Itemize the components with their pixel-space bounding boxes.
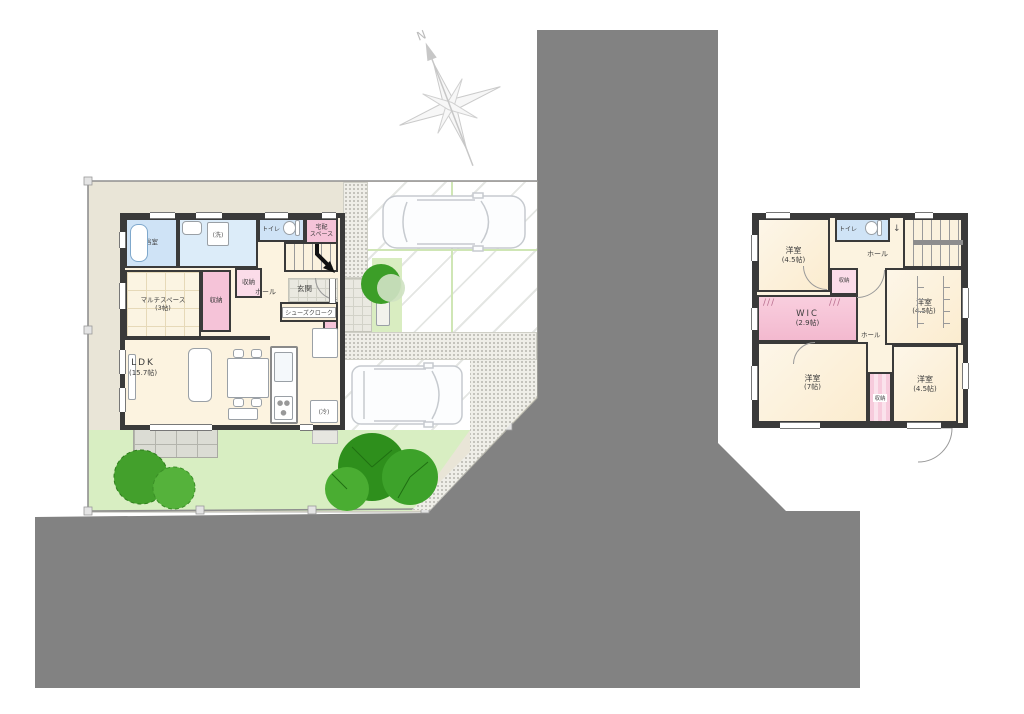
kitchen-sink bbox=[274, 352, 293, 382]
bedroom-sw-size: (7帖) bbox=[804, 383, 821, 391]
hanger-marks-right: /// bbox=[829, 298, 841, 308]
hall2-lower-label: ホール bbox=[861, 332, 881, 340]
fridge-label: (冷) bbox=[319, 407, 330, 416]
window bbox=[780, 422, 820, 429]
window bbox=[915, 212, 933, 219]
ldk-top-wall bbox=[125, 336, 270, 340]
dining-table bbox=[227, 358, 269, 398]
storage-a-label: 収納 bbox=[210, 297, 223, 305]
hanger-marks-left: /// bbox=[763, 298, 775, 308]
toilet1-tank-icon bbox=[295, 220, 300, 236]
window bbox=[962, 288, 969, 318]
stairs-rail bbox=[913, 240, 963, 245]
bedroom-se: 洋室 (4.5帖) bbox=[892, 345, 958, 423]
storage-2f-a: 収納 bbox=[830, 268, 858, 295]
washer-label: (洗) bbox=[213, 230, 224, 239]
floor-plan-canvas: N 浴室 洗面所 (洗) トイレ 宅配 スペース マルチスペース bbox=[0, 0, 1024, 714]
shoe-closet: シューズクローク bbox=[280, 302, 338, 322]
storage-2f-b-label: 収納 bbox=[873, 394, 886, 402]
parking-stall-2 bbox=[345, 360, 470, 430]
multi-space: マルチスペース (3帖) bbox=[125, 270, 201, 340]
approach-walkway bbox=[343, 332, 537, 360]
wic-size: (2.9帖) bbox=[796, 319, 820, 327]
low-board bbox=[228, 408, 258, 420]
window bbox=[751, 366, 758, 400]
delivery-label-1: 宅配 bbox=[315, 224, 327, 231]
hall1-label: ホール bbox=[255, 288, 276, 296]
ldk-label-block: LDK (15.7帖) bbox=[129, 358, 157, 377]
bedroom-se-size: (4.5帖) bbox=[913, 385, 937, 393]
wood-deck bbox=[133, 428, 218, 458]
wic-label: WIC bbox=[796, 309, 819, 319]
bathtub-icon bbox=[130, 224, 148, 262]
ldk-label: LDK bbox=[129, 358, 157, 369]
multi-size: (3帖) bbox=[155, 305, 171, 313]
terrace-sliding-door bbox=[150, 424, 212, 431]
window bbox=[119, 350, 126, 374]
storage-2f-b: 収納 bbox=[868, 372, 892, 423]
toilet1-label: トイレ bbox=[262, 226, 280, 233]
window bbox=[751, 235, 758, 261]
parking-joint-v bbox=[451, 182, 453, 332]
clothes-pole-2 bbox=[943, 276, 950, 328]
stove bbox=[274, 396, 293, 420]
chair-4 bbox=[251, 398, 262, 407]
entrance-porch bbox=[343, 278, 372, 332]
cupboard bbox=[312, 328, 338, 358]
bedroom-e-door-arc bbox=[857, 270, 885, 298]
floor2-plan: 洋室 (4.5帖) トイレ ↓ ホール 収納 WIC (2.9帖) /// //… bbox=[752, 213, 968, 428]
window bbox=[119, 232, 126, 248]
chair-1 bbox=[233, 349, 244, 358]
bedroom-se-label: 洋室 bbox=[917, 375, 933, 385]
entrance-door bbox=[329, 279, 336, 303]
clothes-pole-1 bbox=[917, 276, 924, 328]
floor1-plan: 浴室 洗面所 (洗) トイレ 宅配 スペース マルチスペース (3帖) 収納 bbox=[120, 213, 345, 430]
washbasin-icon bbox=[182, 221, 202, 235]
window bbox=[265, 212, 288, 219]
back-door bbox=[300, 424, 313, 431]
storage-a: 収納 bbox=[201, 270, 231, 332]
bedroom-nw-size: (4.5帖) bbox=[782, 256, 806, 264]
entrance-label: 玄関 bbox=[297, 284, 312, 293]
toilet2-tank-icon bbox=[877, 220, 882, 236]
bedroom-sw-label: 洋室 bbox=[805, 374, 821, 384]
window bbox=[962, 363, 969, 389]
bedroom-nw-label: 洋室 bbox=[786, 246, 802, 256]
window bbox=[196, 212, 222, 219]
washer-icon: (洗) bbox=[207, 222, 229, 246]
storage-2f-a-label: 収納 bbox=[838, 278, 849, 285]
fridge: (冷) bbox=[310, 400, 338, 423]
back-door-step bbox=[312, 430, 338, 444]
storage-b-label: 収納 bbox=[242, 279, 255, 287]
sofa bbox=[188, 348, 212, 402]
stairs-up-arrow bbox=[311, 238, 337, 276]
window bbox=[119, 388, 126, 412]
window bbox=[150, 212, 175, 219]
gravel-strip bbox=[343, 182, 368, 278]
window bbox=[766, 212, 790, 219]
window bbox=[751, 308, 758, 330]
chair-3 bbox=[233, 398, 244, 407]
shoe-closet-label: シューズクローク bbox=[282, 307, 336, 318]
delivery-door bbox=[322, 212, 336, 219]
bedroom-e: 洋室 (4.5帖) bbox=[885, 268, 963, 345]
stairs-down-arrow: ↓ bbox=[893, 224, 901, 234]
chair-2 bbox=[251, 349, 262, 358]
balcony-door bbox=[907, 422, 941, 429]
garden-utility bbox=[376, 300, 390, 326]
toilet2-label: トイレ bbox=[839, 226, 857, 233]
ldk-size: (15.7帖) bbox=[129, 369, 157, 377]
window bbox=[119, 283, 126, 309]
hall2-upper-label: ホール bbox=[867, 250, 888, 258]
